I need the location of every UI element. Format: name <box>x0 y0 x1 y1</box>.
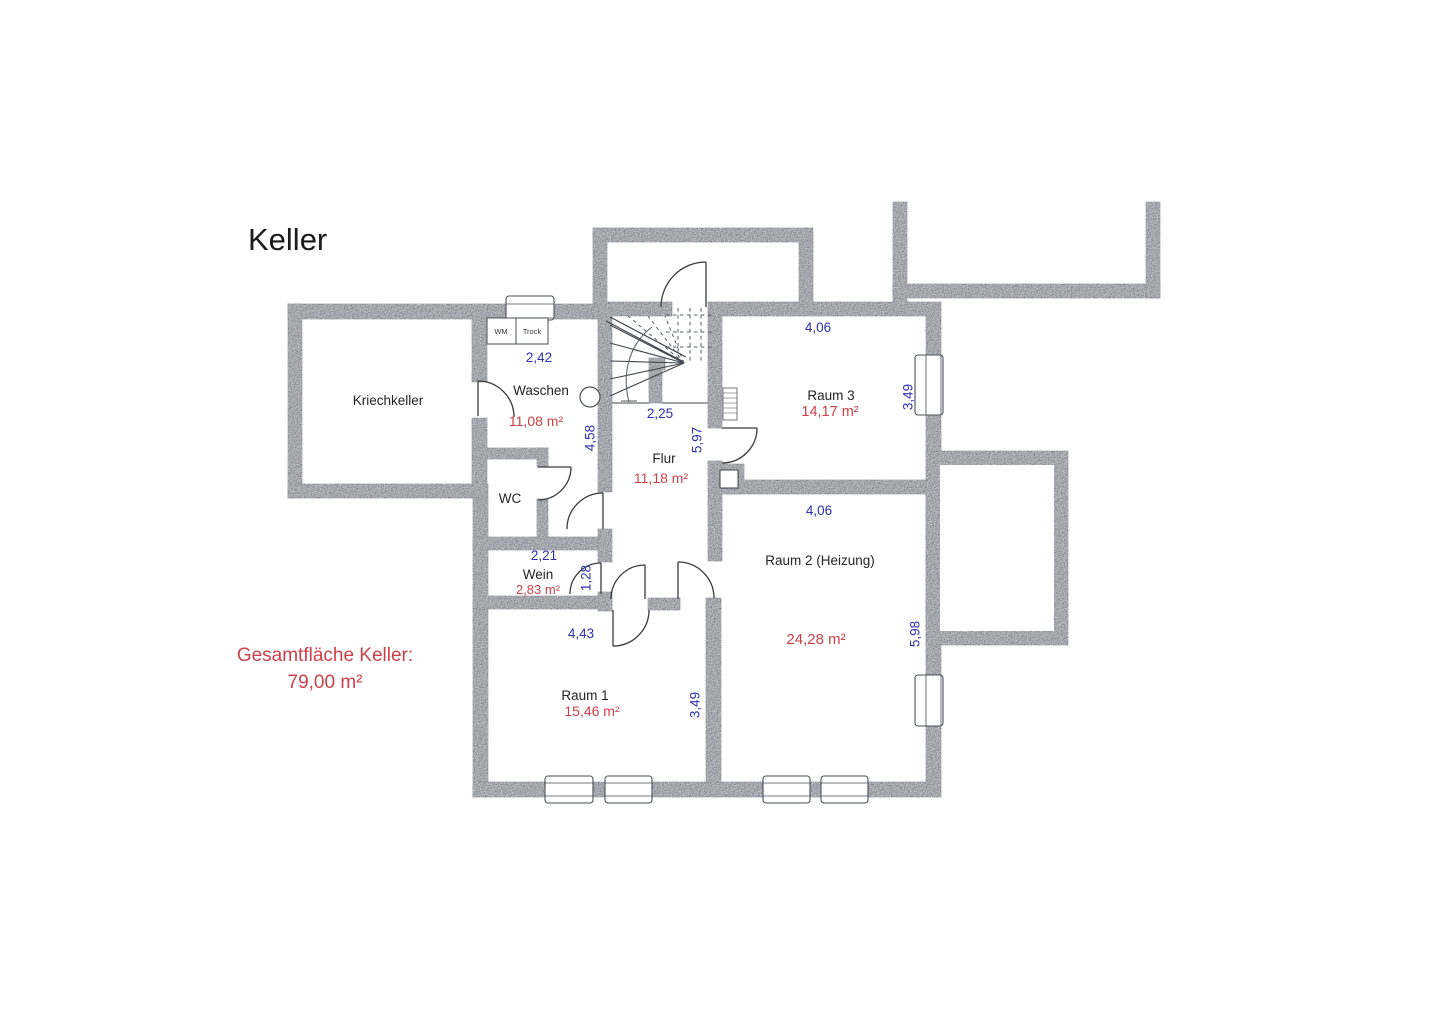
room-label-wein: Wein <box>523 567 554 582</box>
door-entry <box>661 262 706 307</box>
dryer-label: Trock <box>523 327 542 336</box>
wall <box>648 598 680 610</box>
room-label-raum1: Raum 1 <box>561 688 608 703</box>
dim-raum2-width: 4,06 <box>806 503 832 518</box>
wall <box>472 304 487 382</box>
wall <box>598 592 612 611</box>
wall <box>926 316 941 356</box>
door-raum2 <box>678 562 714 599</box>
dim-wein-height: 1,28 <box>579 565 594 591</box>
wall <box>288 304 302 498</box>
dim-raum1-height: 3,49 <box>688 692 703 718</box>
floor-plan-page: WM Trock Keller Kriechkeller 2,42 Wasche… <box>0 0 1440 1018</box>
window <box>605 776 652 803</box>
area-label-raum3: 14,17 m² <box>801 404 858 420</box>
dim-raum2-height: 5,98 <box>908 621 923 647</box>
room-label-kriechkeller: Kriechkeller <box>353 393 424 408</box>
door-wc <box>538 467 571 500</box>
area-label-wein: 2,83 m² <box>516 582 561 597</box>
wall <box>649 370 662 403</box>
room-label-raum2: Raum 2 (Heizung) <box>765 553 875 568</box>
dim-raum3-height: 3,49 <box>901 384 916 410</box>
page-title: Keller <box>248 222 327 257</box>
wall <box>1146 202 1160 298</box>
wall <box>722 480 926 494</box>
wall <box>473 596 598 609</box>
door-kriechkeller <box>478 381 514 417</box>
area-label-flur: 11,18 m² <box>634 470 689 486</box>
wall <box>473 782 941 797</box>
washing-machine: WM <box>487 318 516 344</box>
window <box>915 355 943 415</box>
wall <box>537 499 548 538</box>
light-shaft-interior <box>940 465 1054 631</box>
wall <box>537 448 548 467</box>
dim-raum3-width: 4,06 <box>805 320 831 335</box>
wall <box>799 242 813 304</box>
floor-plan-svg: WM Trock Keller Kriechkeller 2,42 Wasche… <box>0 0 1440 1018</box>
wall <box>598 529 612 562</box>
dryer: Trock <box>516 318 548 344</box>
area-label-raum2: 24,28 m² <box>786 631 845 648</box>
room-label-flur: Flur <box>652 451 676 466</box>
wall <box>607 302 672 316</box>
window <box>506 296 554 320</box>
wall <box>649 358 665 370</box>
door-raum1 <box>611 565 649 646</box>
window <box>545 776 593 803</box>
room-label-wc: WC <box>499 491 522 506</box>
wall <box>593 228 813 242</box>
window <box>915 675 943 726</box>
wall <box>288 484 488 498</box>
chimney-flue <box>720 470 738 488</box>
wall <box>926 724 941 784</box>
door-flur-lobby <box>567 493 603 529</box>
radiator <box>723 388 737 420</box>
floor-drain <box>580 387 600 407</box>
wall <box>893 284 1160 298</box>
dim-flur-width: 2,25 <box>647 406 673 421</box>
wall <box>706 598 721 782</box>
washing-machine-label: WM <box>494 327 507 336</box>
dim-raum1-width: 4,43 <box>568 626 594 641</box>
window <box>821 776 868 803</box>
dim-waschen-height: 4,58 <box>583 425 598 451</box>
dim-waschen-width: 2,42 <box>526 350 552 365</box>
total-area-value: 79,00 m² <box>288 672 363 693</box>
area-label-waschen: 11,08 m² <box>509 413 564 429</box>
window <box>763 776 810 803</box>
dim-wein-width: 2,21 <box>531 548 557 563</box>
total-area-label: Gesamtfläche Keller: <box>237 645 413 666</box>
room-label-raum3: Raum 3 <box>807 388 854 403</box>
area-label-raum1: 15,46 m² <box>564 703 620 719</box>
dim-flur-height: 5,97 <box>690 427 705 453</box>
wall <box>708 316 722 428</box>
door-raum3 <box>722 428 757 463</box>
room-label-waschen: Waschen <box>513 383 569 398</box>
